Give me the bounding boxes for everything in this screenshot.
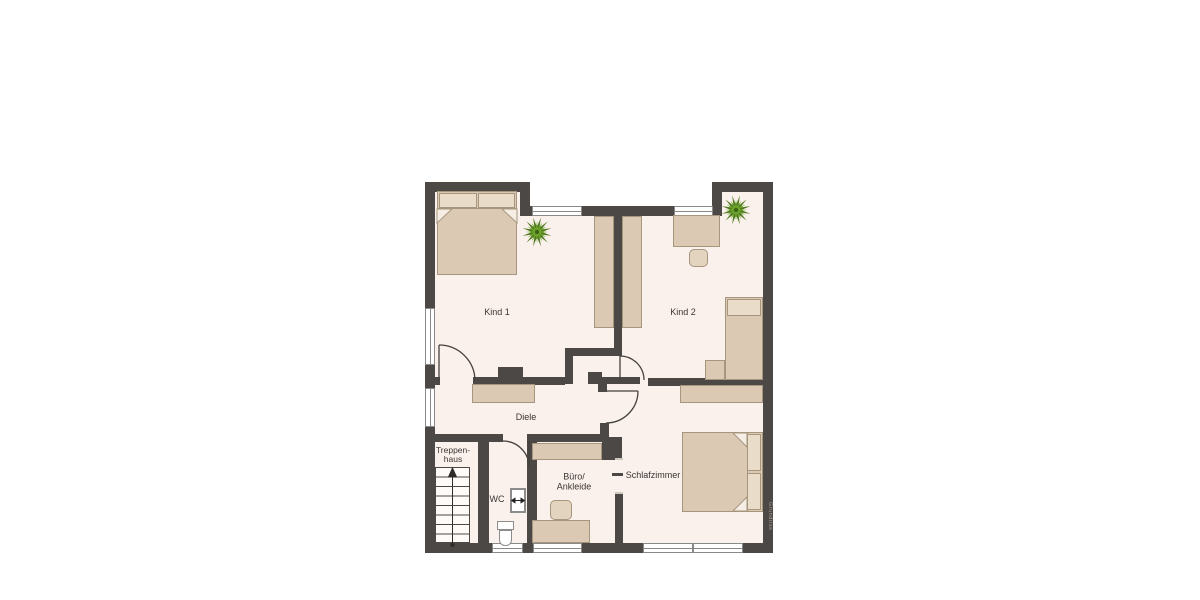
wall-kind1-nook-bottom bbox=[565, 348, 622, 356]
bed-kind1-blanket-line bbox=[437, 208, 517, 209]
wardrobe-buero bbox=[532, 443, 602, 460]
wardrobe-kind1 bbox=[594, 216, 614, 328]
wall-kind1-kind2-divider bbox=[614, 206, 622, 352]
room-label-wc: WC bbox=[490, 495, 505, 505]
window-bottom-schlaf-right bbox=[693, 543, 743, 553]
toilet-cistern bbox=[497, 521, 514, 530]
wall-diele-bottom-right bbox=[527, 434, 602, 442]
pillow-kind1-right bbox=[478, 193, 515, 208]
chimney-block bbox=[498, 367, 523, 385]
passage-jamb-top bbox=[615, 458, 623, 460]
room-label-buero: Büro/ Ankleide bbox=[557, 472, 592, 491]
wall-buero-corner-block bbox=[602, 437, 622, 460]
room-label-schlafzimmer: Schlafzimmer bbox=[626, 471, 681, 481]
wall-schlaf-door-stub-top bbox=[598, 384, 607, 392]
wall-treppenhaus-wc bbox=[478, 437, 489, 543]
wall-diele-bottom-left bbox=[425, 434, 503, 442]
room-label-treppenhaus: Treppen- haus bbox=[436, 446, 470, 464]
wardrobe-schlafzimmer bbox=[680, 385, 763, 403]
wall-diele-topright-nub bbox=[588, 372, 602, 378]
wall-diele-topright bbox=[588, 377, 640, 384]
wall-kind1-nook-vertical bbox=[565, 348, 573, 384]
wall-diele-top-stub bbox=[433, 377, 440, 385]
room-label-kind2: Kind 2 bbox=[670, 308, 696, 318]
window-left-upper bbox=[425, 308, 435, 365]
toilet-bowl bbox=[499, 530, 512, 546]
room-label-diele: Diele bbox=[516, 413, 537, 423]
pillow-kind2 bbox=[727, 299, 761, 316]
sideboard-diele bbox=[472, 384, 535, 403]
window-top-kind1 bbox=[532, 206, 582, 216]
watermark-text: Grundriss bbox=[763, 495, 773, 537]
nightstand-kind2 bbox=[705, 360, 725, 380]
passage-mid-mark bbox=[612, 473, 623, 476]
floor-plan: Kind 1 Kind 2 Diele Treppen- haus WC Bür… bbox=[0, 0, 1200, 600]
pillow-schlaf-bottom bbox=[747, 473, 761, 510]
chair-kind2 bbox=[689, 249, 708, 267]
pillow-schlaf-top bbox=[747, 434, 761, 471]
passage-jamb-bottom bbox=[615, 492, 623, 494]
wc-wall-fixture bbox=[510, 488, 526, 513]
wall-buero-schlafzimmer bbox=[615, 493, 623, 543]
chair-buero bbox=[550, 500, 572, 520]
window-left-lower bbox=[425, 388, 435, 427]
wardrobe-kind2 bbox=[622, 216, 642, 328]
pillow-kind1-left bbox=[439, 193, 477, 208]
staircase bbox=[435, 467, 470, 543]
bed-schlaf-divider-line bbox=[747, 432, 748, 512]
desk-kind2 bbox=[673, 215, 720, 247]
outer-wall-left bbox=[425, 182, 435, 553]
window-bottom-buero bbox=[533, 543, 582, 553]
desk-buero bbox=[532, 520, 590, 543]
window-bottom-schlaf-left bbox=[643, 543, 693, 553]
room-label-kind1: Kind 1 bbox=[484, 308, 510, 318]
